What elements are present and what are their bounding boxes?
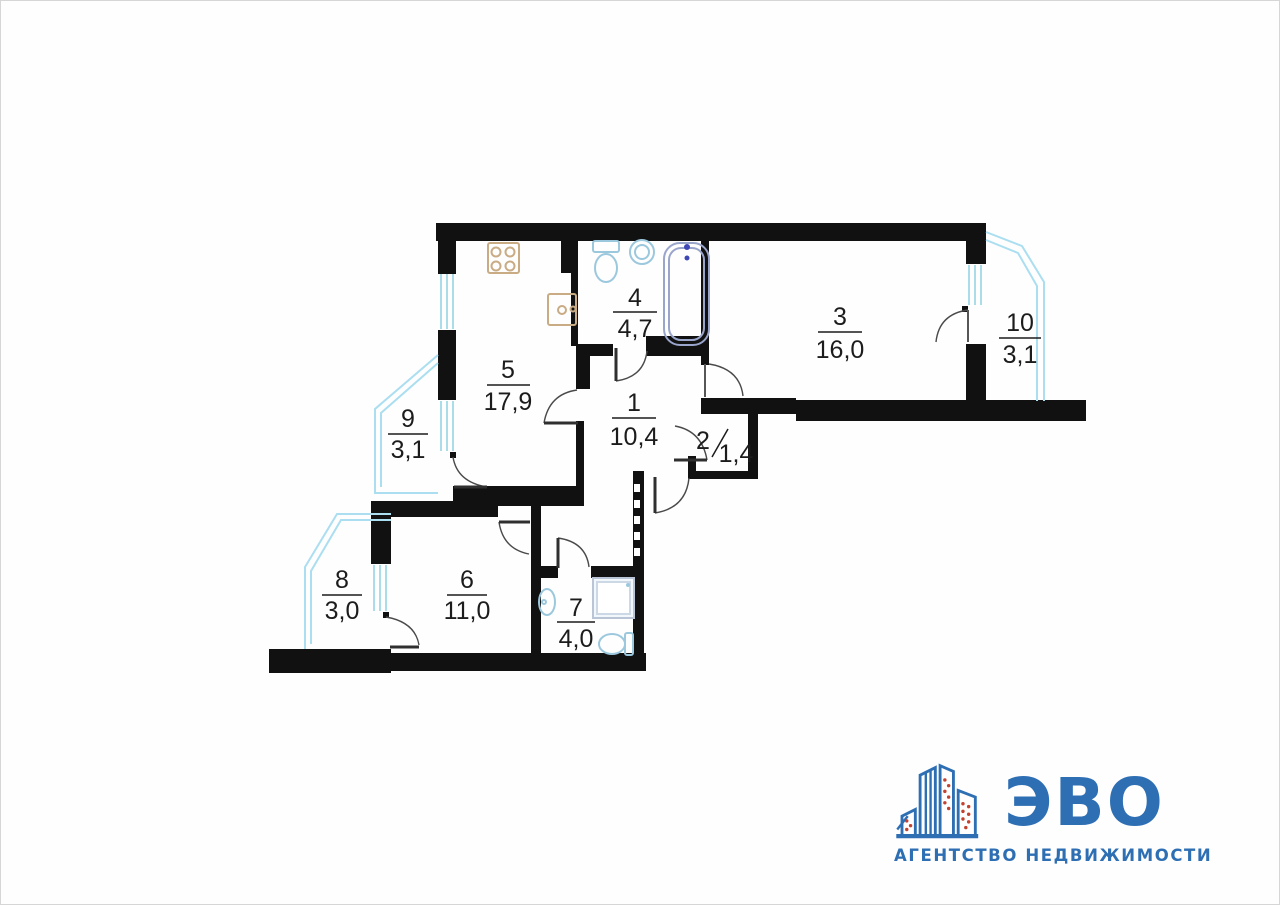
wall-hall-divider-b xyxy=(576,421,584,487)
buildings-icon xyxy=(894,759,990,839)
room-4-area: 4,7 xyxy=(618,315,653,343)
room3-door-arc xyxy=(709,364,743,396)
floor-plan-screenshot: 1 10,4 2 1,4 3 16,0 4 4,7 5 xyxy=(0,0,1280,905)
wall-bottom-left xyxy=(269,649,391,673)
bathroom-door-arc xyxy=(616,351,647,381)
windows xyxy=(374,265,981,611)
room-5-label: 5 17,9 xyxy=(484,356,533,416)
brand-name: ЭВО xyxy=(1004,767,1165,839)
room-6-number: 6 xyxy=(460,566,474,594)
room6-door-arc xyxy=(499,522,529,554)
room-8-area: 3,0 xyxy=(325,597,360,625)
kitchen-door-arc xyxy=(544,390,577,423)
stove-icon xyxy=(488,243,519,273)
balcony10-door-arc xyxy=(936,310,968,342)
room-8-label: 8 3,0 xyxy=(322,566,362,625)
entrance-door-arc xyxy=(655,478,689,513)
room-7-area: 4,0 xyxy=(559,625,594,653)
wall-room3-right-b xyxy=(966,344,986,402)
wall-room7-top-a xyxy=(541,566,558,578)
room-1-label: 1 10,4 xyxy=(610,389,659,451)
wall-top xyxy=(436,223,986,241)
agency-logo: ЭВО АГЕНТСТВО НЕДВИЖИМОСТИ xyxy=(894,759,1204,865)
room-2-area: 1,4 xyxy=(719,440,754,468)
washbasin-icon xyxy=(630,240,654,264)
room-6-label: 6 11,0 xyxy=(444,566,491,625)
wall-lower-left xyxy=(371,501,391,564)
room-3-number: 3 xyxy=(833,303,847,331)
room-5-number: 5 xyxy=(501,356,515,384)
wall-room3-bottom-a xyxy=(701,398,796,414)
room-7-label: 7 4,0 xyxy=(557,594,595,653)
toilet-7-icon xyxy=(599,633,633,655)
room-2-label: 2 1,4 xyxy=(696,427,753,468)
room-7-number: 7 xyxy=(569,594,583,622)
wall-room6-stub xyxy=(531,506,541,531)
room-6-area: 11,0 xyxy=(444,597,491,625)
room-8-number: 8 xyxy=(335,566,349,594)
wall-bottom-right xyxy=(389,653,646,671)
kitchen-window-2 xyxy=(441,401,453,451)
room-2-number: 2 xyxy=(696,427,710,455)
room-1-number: 1 xyxy=(627,389,641,417)
room-4-label: 4 4,7 xyxy=(613,284,657,343)
kitchen-window-1 xyxy=(441,274,453,329)
room-3-area: 16,0 xyxy=(816,336,865,364)
room-10-number: 10 xyxy=(1006,309,1034,337)
room-10-label: 10 3,1 xyxy=(999,309,1041,369)
room6-balcony-door-arc xyxy=(386,617,419,645)
room-5-area: 17,9 xyxy=(484,388,533,416)
shower-tray-icon xyxy=(593,578,634,618)
washbasin-7-icon xyxy=(539,589,555,615)
wall-kitchen-bottom xyxy=(453,486,584,506)
wall-hall-room3 xyxy=(701,351,709,365)
room-1-area: 10,4 xyxy=(610,423,659,451)
wall-closet-bottom xyxy=(688,471,758,479)
room-9-label: 9 3,1 xyxy=(388,405,428,464)
room7-door-arc xyxy=(558,538,589,567)
room-4-number: 4 xyxy=(628,284,642,312)
wall-closet-return xyxy=(688,456,696,471)
room3-window xyxy=(969,265,981,305)
room6-balcony-window xyxy=(374,565,386,611)
kitchen-balcony-door-arc xyxy=(453,457,487,487)
wall-kitchen-left-b xyxy=(438,330,456,400)
wall-hall-divider-a xyxy=(576,346,590,389)
wall-room3-bottom-ext xyxy=(796,400,1086,421)
brand-tagline: АГЕНТСТВО НЕДВИЖИМОСТИ xyxy=(894,846,1204,865)
room-9-area: 3,1 xyxy=(391,436,426,464)
toilet-icon xyxy=(593,241,619,282)
wall-room3-right-a xyxy=(966,241,986,264)
wall-room6-top xyxy=(391,504,498,517)
room-10-area: 3,1 xyxy=(1003,341,1038,369)
wall-kitchen-left-a xyxy=(438,241,456,274)
room-3-label: 3 16,0 xyxy=(816,303,865,364)
room-9-number: 9 xyxy=(401,405,415,433)
